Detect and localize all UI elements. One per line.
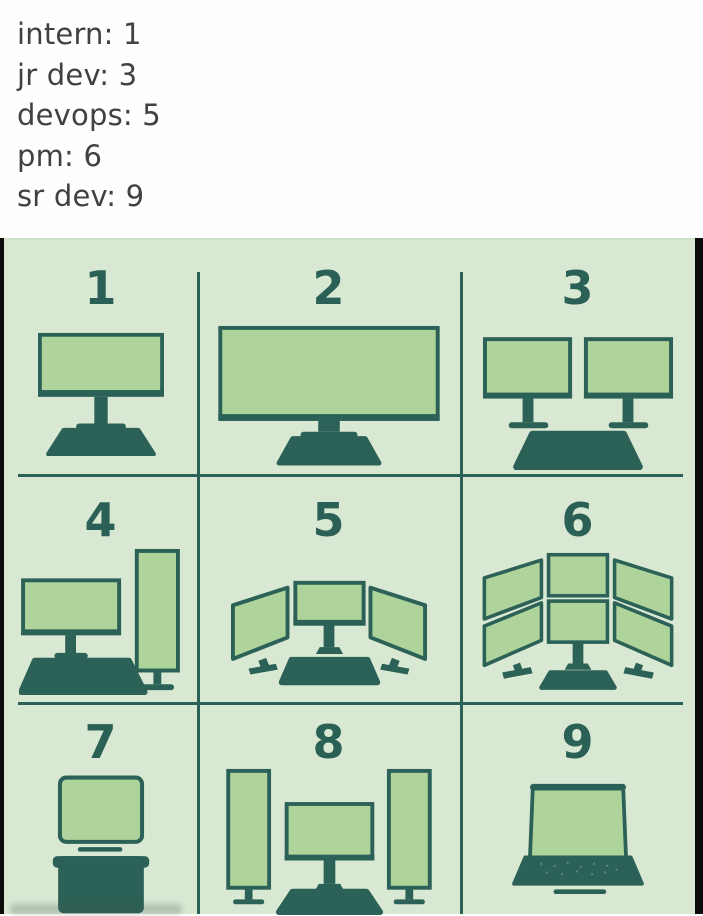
laptop-icon xyxy=(512,782,644,895)
two-vertical-plus-center-monitor-icon xyxy=(224,767,434,915)
six-monitor-wall-icon xyxy=(479,551,677,694)
setups-grid: 1 2 3 xyxy=(4,238,695,914)
dual-monitors-icon xyxy=(481,335,675,470)
legend-line-devops: devops: 5 xyxy=(17,95,703,136)
single-monitor-icon xyxy=(36,331,166,456)
setup-cell-1: 1 xyxy=(4,240,197,474)
monitor-plus-vertical-monitor-icon xyxy=(19,547,182,696)
setup-cell-8: 8 xyxy=(197,702,460,916)
setup-number: 1 xyxy=(84,264,116,312)
setup-cell-3: 3 xyxy=(460,240,695,474)
legend: intern: 1 jr dev: 3 devops: 5 pm: 6 sr d… xyxy=(0,0,703,238)
setup-number: 2 xyxy=(312,264,344,312)
crt-monitor-on-tower-icon xyxy=(51,774,151,915)
setup-number: 8 xyxy=(312,718,344,766)
setup-number: 9 xyxy=(561,718,593,766)
setup-cell-6: 6 xyxy=(460,474,695,702)
legend-line-sr-dev: sr dev: 9 xyxy=(17,176,703,217)
ultrawide-monitor-icon xyxy=(216,324,442,466)
setup-cell-4: 4 xyxy=(4,474,197,702)
setup-number: 4 xyxy=(84,496,116,544)
legend-line-jr-dev: jr dev: 3 xyxy=(17,55,703,96)
cropped-watermark-smudge xyxy=(10,904,182,914)
image-frame: 1 2 3 xyxy=(0,238,703,914)
setup-number: 5 xyxy=(312,496,344,544)
setup-cell-7: 7 xyxy=(4,702,197,916)
setup-cell-5: 5 xyxy=(197,474,460,702)
setup-cell-9: 9 xyxy=(460,702,695,916)
triple-monitors-icon xyxy=(229,575,429,694)
setup-number: 6 xyxy=(561,496,593,544)
setup-number: 3 xyxy=(561,264,593,312)
setup-cell-2: 2 xyxy=(197,240,460,474)
setup-number: 7 xyxy=(84,718,116,766)
legend-line-intern: intern: 1 xyxy=(17,14,703,55)
legend-line-pm: pm: 6 xyxy=(17,136,703,177)
